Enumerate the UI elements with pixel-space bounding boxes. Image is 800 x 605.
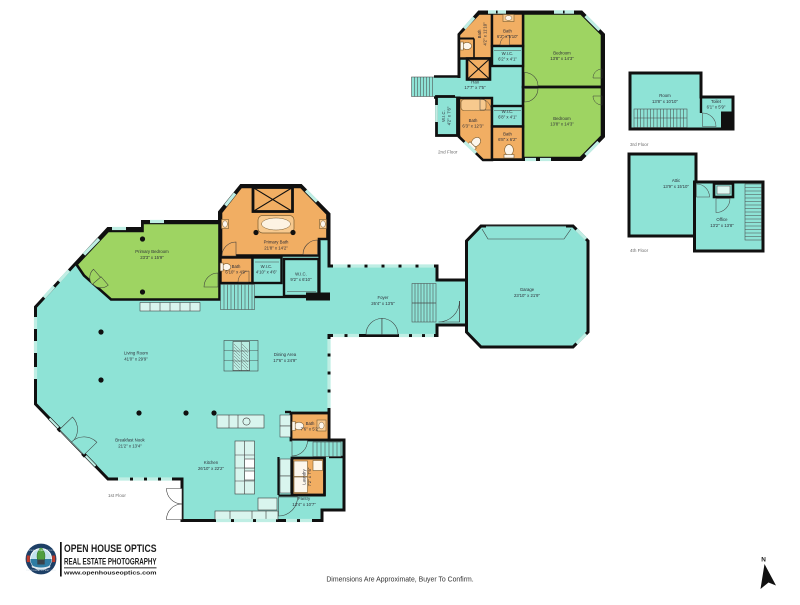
svg-text:2nd Floor: 2nd Floor: [438, 150, 458, 155]
svg-text:Primary Bath: Primary Bath: [264, 240, 289, 245]
svg-text:6'10" x 4'9": 6'10" x 4'9": [225, 270, 247, 275]
svg-text:W.I.C.: W.I.C.: [502, 51, 514, 56]
svg-text:Kitchen: Kitchen: [204, 460, 219, 465]
svg-text:17'7" x 7'5": 17'7" x 7'5": [464, 85, 486, 90]
svg-text:13'8" x 14'3": 13'8" x 14'3": [550, 122, 574, 127]
svg-text:Pantry: Pantry: [298, 496, 311, 501]
svg-text:4'10" x 4'6": 4'10" x 4'6": [256, 270, 278, 275]
svg-text:Laundry: Laundry: [302, 468, 307, 484]
svg-text:6'1" x 5'9": 6'1" x 5'9": [707, 105, 726, 110]
svg-text:6'2" x 5'10": 6'2" x 5'10": [497, 34, 519, 39]
svg-text:Bath: Bath: [477, 29, 482, 38]
svg-text:Garage: Garage: [520, 287, 535, 292]
svg-text:21'8" x 14'2": 21'8" x 14'2": [264, 246, 288, 251]
svg-text:Room: Room: [659, 93, 671, 98]
svg-text:Bath: Bath: [306, 421, 315, 426]
svg-text:13'4" x 10'7": 13'4" x 10'7": [292, 502, 316, 507]
svg-text:Toilet: Toilet: [711, 99, 722, 104]
svg-text:4'2" x 11'10": 4'2" x 11'10": [483, 22, 488, 46]
svg-text:W.I.C.: W.I.C.: [502, 109, 514, 114]
svg-text:6'8" x 6'2": 6'8" x 6'2": [498, 137, 517, 142]
svg-text:23'10" x 21'9": 23'10" x 21'9": [514, 293, 540, 298]
svg-text:OPEN HOUSE OPTICS: OPEN HOUSE OPTICS: [28, 550, 55, 552]
svg-text:Bedroom: Bedroom: [553, 116, 571, 121]
svg-text:Office: Office: [716, 217, 728, 222]
svg-text:Attic: Attic: [672, 178, 681, 183]
svg-text:1st Floor: 1st Floor: [108, 493, 126, 498]
svg-text:Breakfast Nook: Breakfast Nook: [115, 438, 145, 443]
svg-text:26'10" x 22'2": 26'10" x 22'2": [198, 466, 224, 471]
svg-text:Dining Area: Dining Area: [274, 352, 297, 357]
svg-text:4'2" x 7'6": 4'2" x 7'6": [447, 106, 452, 125]
svg-text:Bath: Bath: [503, 29, 512, 34]
svg-text:Living Room: Living Room: [124, 351, 148, 356]
svg-text:26'4" x 13'5": 26'4" x 13'5": [371, 301, 395, 306]
svg-text:W.I.C.: W.I.C.: [261, 264, 273, 269]
svg-text:13'8" x 10'10": 13'8" x 10'10": [652, 99, 678, 104]
svg-text:13'2" x 13'8": 13'2" x 13'8": [710, 223, 734, 228]
svg-text:OPEN HOUSE OPTICS: OPEN HOUSE OPTICS: [64, 543, 157, 555]
svg-text:PHOTOGRAPHY EST 2020: PHOTOGRAPHY EST 2020: [26, 569, 57, 572]
svg-text:4th Floor: 4th Floor: [630, 248, 649, 253]
svg-text:7'2" x 7'6": 7'2" x 7'6": [307, 467, 312, 486]
svg-text:13'9" x 15'10": 13'9" x 15'10": [663, 184, 689, 189]
svg-text:21'2" x 13'4": 21'2" x 13'4": [118, 444, 142, 449]
svg-text:41'0" x 29'9": 41'0" x 29'9": [124, 357, 148, 362]
svg-text:13'8" x 14'3": 13'8" x 14'3": [550, 56, 574, 61]
svg-text:6'3" x 12'3": 6'3" x 12'3": [462, 124, 484, 129]
svg-text:Bath: Bath: [469, 118, 478, 123]
svg-text:W.I.C.: W.I.C.: [295, 272, 307, 277]
svg-text:Bedroom: Bedroom: [553, 51, 571, 56]
svg-text:REAL ESTATE PHOTOGRAPHY: REAL ESTATE PHOTOGRAPHY: [64, 556, 157, 566]
svg-text:3rd Floor: 3rd Floor: [630, 142, 649, 147]
svg-text:Bath: Bath: [503, 132, 512, 137]
svg-text:7'6" x 5'2": 7'6" x 5'2": [301, 427, 320, 432]
svg-text:Bath: Bath: [232, 264, 241, 269]
svg-text:17'6" x 24'9": 17'6" x 24'9": [273, 358, 297, 363]
svg-text:Dimensions Are Approximate, Bu: Dimensions Are Approximate, Buyer To Con…: [326, 577, 473, 584]
svg-text:Foyer: Foyer: [378, 295, 390, 300]
svg-text:23'3" x 15'9": 23'3" x 15'9": [140, 255, 164, 260]
svg-text:www.openhouseoptics.com: www.openhouseoptics.com: [63, 570, 157, 576]
svg-text:6'8" x 4'1": 6'8" x 4'1": [498, 115, 517, 120]
svg-text:6'2" x 4'1": 6'2" x 4'1": [498, 57, 517, 62]
svg-text:W.I.C.: W.I.C.: [441, 110, 446, 122]
svg-text:Primary Bedroom: Primary Bedroom: [135, 249, 169, 254]
svg-text:Hall: Hall: [471, 80, 478, 85]
svg-text:N: N: [761, 557, 766, 564]
svg-text:9'2" x 6'10": 9'2" x 6'10": [290, 277, 312, 282]
